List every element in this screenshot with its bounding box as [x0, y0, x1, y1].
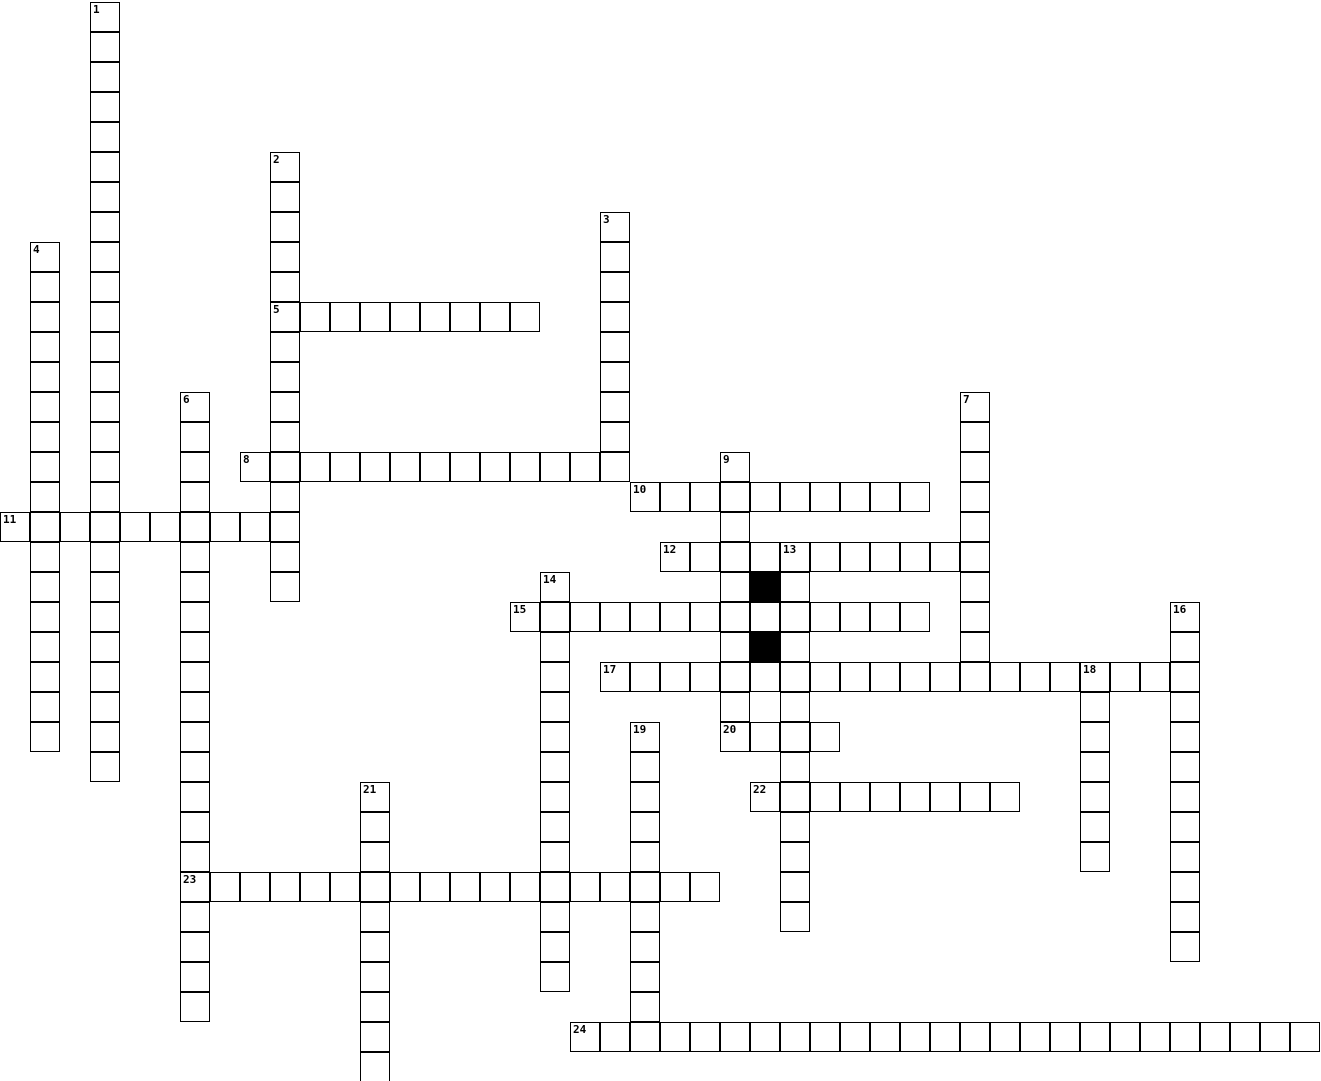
grid-cell[interactable] [870, 482, 900, 512]
grid-cell[interactable] [360, 302, 390, 332]
grid-cell[interactable] [900, 542, 930, 572]
grid-cell[interactable] [780, 752, 810, 782]
grid-cell[interactable] [510, 302, 540, 332]
grid-cell[interactable] [180, 752, 210, 782]
grid-cell[interactable] [360, 1052, 390, 1081]
clue-number: 12 [663, 544, 676, 555]
grid-cell[interactable] [840, 782, 870, 812]
grid-cell[interactable] [990, 1022, 1020, 1052]
grid-cell[interactable] [780, 602, 810, 632]
grid-cell[interactable] [90, 182, 120, 212]
grid-cell[interactable] [600, 392, 630, 422]
grid-cell[interactable] [270, 242, 300, 272]
grid-cell[interactable] [90, 242, 120, 272]
grid-cell[interactable] [180, 452, 210, 482]
grid-cell[interactable] [900, 1022, 930, 1052]
grid-cell[interactable] [720, 662, 750, 692]
grid-cell[interactable] [450, 452, 480, 482]
grid-cell[interactable] [720, 1022, 750, 1052]
grid-cell[interactable] [600, 1022, 630, 1052]
grid-cell[interactable] [750, 542, 780, 572]
grid-cell[interactable] [1170, 782, 1200, 812]
grid-cell[interactable]: 7 [960, 392, 990, 422]
grid-cell[interactable] [270, 392, 300, 422]
grid-cell[interactable] [180, 662, 210, 692]
grid-cell[interactable] [1170, 632, 1200, 662]
grid-cell[interactable] [660, 1022, 690, 1052]
grid-cell[interactable] [870, 662, 900, 692]
grid-cell[interactable] [90, 542, 120, 572]
grid-cell[interactable] [1050, 662, 1080, 692]
grid-cell[interactable] [360, 842, 390, 872]
grid-cell[interactable] [270, 572, 300, 602]
grid-cell[interactable] [510, 872, 540, 902]
grid-cell[interactable] [1170, 902, 1200, 932]
grid-cell[interactable] [1170, 722, 1200, 752]
grid-cell[interactable] [1170, 752, 1200, 782]
grid-cell[interactable] [870, 782, 900, 812]
grid-cell[interactable] [240, 872, 270, 902]
grid-cell[interactable]: 18 [1080, 662, 1110, 692]
grid-cell[interactable]: 12 [660, 542, 690, 572]
grid-cell[interactable] [180, 422, 210, 452]
grid-cell[interactable] [360, 932, 390, 962]
clue-number: 19 [633, 724, 646, 735]
grid-cell[interactable] [30, 632, 60, 662]
grid-cell[interactable]: 19 [630, 722, 660, 752]
grid-cell[interactable] [30, 722, 60, 752]
grid-cell[interactable] [30, 302, 60, 332]
grid-cell[interactable] [540, 602, 570, 632]
grid-cell[interactable] [480, 452, 510, 482]
grid-cell[interactable]: 23 [180, 872, 210, 902]
grid-cell[interactable] [270, 542, 300, 572]
grid-cell[interactable] [1260, 1022, 1290, 1052]
grid-cell[interactable] [420, 452, 450, 482]
grid-cell[interactable] [810, 722, 840, 752]
grid-cell[interactable] [30, 572, 60, 602]
grid-cell[interactable] [90, 302, 120, 332]
grid-cell[interactable] [1020, 662, 1050, 692]
grid-cell[interactable] [390, 452, 420, 482]
grid-cell[interactable] [90, 632, 120, 662]
grid-cell[interactable] [780, 1022, 810, 1052]
grid-cell[interactable] [540, 662, 570, 692]
grid-cell[interactable] [30, 452, 60, 482]
grid-cell[interactable] [90, 332, 120, 362]
grid-cell[interactable] [840, 1022, 870, 1052]
grid-cell[interactable] [720, 692, 750, 722]
grid-cell[interactable] [750, 602, 780, 632]
grid-cell[interactable] [600, 362, 630, 392]
grid-cell[interactable] [780, 872, 810, 902]
grid-cell[interactable] [360, 1022, 390, 1052]
grid-cell[interactable] [840, 662, 870, 692]
grid-cell[interactable] [630, 872, 660, 902]
grid-cell[interactable] [750, 722, 780, 752]
block-cell [750, 572, 780, 602]
grid-cell[interactable] [930, 662, 960, 692]
grid-cell[interactable] [630, 782, 660, 812]
grid-cell[interactable] [1110, 662, 1140, 692]
grid-cell[interactable] [300, 302, 330, 332]
grid-cell[interactable] [960, 542, 990, 572]
grid-cell[interactable] [540, 962, 570, 992]
grid-cell[interactable] [90, 512, 120, 542]
grid-cell[interactable] [540, 842, 570, 872]
grid-cell[interactable] [960, 1022, 990, 1052]
grid-cell[interactable] [360, 812, 390, 842]
grid-cell[interactable] [570, 872, 600, 902]
grid-cell[interactable]: 15 [510, 602, 540, 632]
grid-cell[interactable]: 20 [720, 722, 750, 752]
grid-cell[interactable] [1080, 812, 1110, 842]
grid-cell[interactable] [690, 872, 720, 902]
grid-cell[interactable] [1020, 1022, 1050, 1052]
grid-cell[interactable] [960, 422, 990, 452]
grid-cell[interactable] [540, 902, 570, 932]
grid-cell[interactable] [540, 632, 570, 662]
grid-cell[interactable] [180, 602, 210, 632]
grid-cell[interactable]: 16 [1170, 602, 1200, 632]
grid-cell[interactable] [150, 512, 180, 542]
grid-cell[interactable] [780, 842, 810, 872]
grid-cell[interactable] [90, 92, 120, 122]
grid-cell[interactable] [960, 632, 990, 662]
grid-cell[interactable] [690, 602, 720, 632]
grid-cell[interactable] [270, 332, 300, 362]
grid-cell[interactable] [90, 392, 120, 422]
grid-cell[interactable] [540, 692, 570, 722]
grid-cell[interactable] [390, 302, 420, 332]
grid-cell[interactable] [270, 272, 300, 302]
grid-cell[interactable] [90, 572, 120, 602]
grid-cell[interactable] [600, 272, 630, 302]
grid-cell[interactable] [270, 482, 300, 512]
grid-cell[interactable] [780, 812, 810, 842]
grid-cell[interactable] [30, 602, 60, 632]
grid-cell[interactable] [1170, 692, 1200, 722]
grid-cell[interactable] [630, 992, 660, 1022]
grid-cell[interactable] [600, 452, 630, 482]
grid-cell[interactable] [1080, 722, 1110, 752]
grid-cell[interactable] [180, 962, 210, 992]
grid-cell[interactable] [720, 572, 750, 602]
grid-cell[interactable] [960, 482, 990, 512]
clue-number: 16 [1173, 604, 1186, 615]
grid-cell[interactable]: 9 [720, 452, 750, 482]
grid-cell[interactable] [180, 512, 210, 542]
grid-cell[interactable] [660, 482, 690, 512]
clue-number: 13 [783, 544, 796, 555]
grid-cell[interactable]: 8 [240, 452, 270, 482]
grid-cell[interactable] [180, 842, 210, 872]
grid-cell[interactable] [990, 782, 1020, 812]
grid-cell[interactable] [90, 662, 120, 692]
grid-cell[interactable] [300, 872, 330, 902]
grid-cell[interactable] [630, 842, 660, 872]
grid-cell[interactable] [270, 872, 300, 902]
grid-cell[interactable] [750, 1022, 780, 1052]
grid-cell[interactable] [360, 962, 390, 992]
grid-cell[interactable] [630, 812, 660, 842]
grid-cell[interactable] [1080, 842, 1110, 872]
grid-cell[interactable] [810, 542, 840, 572]
grid-cell[interactable] [90, 122, 120, 152]
grid-cell[interactable] [540, 752, 570, 782]
grid-cell[interactable] [570, 452, 600, 482]
grid-cell[interactable] [960, 512, 990, 542]
grid-cell[interactable] [600, 872, 630, 902]
grid-cell[interactable] [810, 482, 840, 512]
grid-cell[interactable] [270, 422, 300, 452]
grid-cell[interactable] [90, 722, 120, 752]
grid-cell[interactable] [180, 902, 210, 932]
grid-cell[interactable] [180, 692, 210, 722]
block-cell [750, 632, 780, 662]
grid-cell[interactable] [690, 482, 720, 512]
grid-cell[interactable]: 4 [30, 242, 60, 272]
grid-cell[interactable] [180, 632, 210, 662]
grid-cell[interactable] [780, 692, 810, 722]
grid-cell[interactable] [270, 362, 300, 392]
grid-cell[interactable] [1140, 662, 1170, 692]
grid-cell[interactable] [180, 572, 210, 602]
grid-cell[interactable] [720, 512, 750, 542]
grid-cell[interactable] [510, 452, 540, 482]
grid-cell[interactable] [810, 782, 840, 812]
grid-cell[interactable] [630, 1022, 660, 1052]
grid-cell[interactable] [90, 602, 120, 632]
grid-cell[interactable] [930, 782, 960, 812]
grid-cell[interactable] [600, 602, 630, 632]
grid-cell[interactable] [750, 482, 780, 512]
grid-cell[interactable] [960, 572, 990, 602]
grid-cell[interactable] [30, 362, 60, 392]
grid-cell[interactable] [690, 1022, 720, 1052]
grid-cell[interactable] [360, 452, 390, 482]
grid-cell[interactable] [540, 812, 570, 842]
grid-cell[interactable] [90, 32, 120, 62]
grid-cell[interactable] [1230, 1022, 1260, 1052]
grid-cell[interactable] [270, 512, 300, 542]
grid-cell[interactable] [960, 662, 990, 692]
grid-cell[interactable] [930, 1022, 960, 1052]
grid-cell[interactable] [630, 752, 660, 782]
grid-cell[interactable] [30, 542, 60, 572]
grid-cell[interactable] [450, 872, 480, 902]
grid-cell[interactable]: 1 [90, 2, 120, 32]
grid-cell[interactable] [210, 512, 240, 542]
grid-cell[interactable] [780, 662, 810, 692]
grid-cell[interactable] [30, 422, 60, 452]
grid-cell[interactable] [30, 272, 60, 302]
grid-cell[interactable] [180, 992, 210, 1022]
grid-cell[interactable] [60, 512, 90, 542]
grid-cell[interactable] [1080, 752, 1110, 782]
grid-cell[interactable] [180, 722, 210, 752]
grid-cell[interactable] [600, 332, 630, 362]
grid-cell[interactable]: 10 [630, 482, 660, 512]
grid-cell[interactable] [870, 542, 900, 572]
grid-cell[interactable] [600, 422, 630, 452]
grid-cell[interactable] [870, 1022, 900, 1052]
grid-cell[interactable] [630, 602, 660, 632]
grid-cell[interactable] [840, 602, 870, 632]
grid-cell[interactable] [180, 482, 210, 512]
grid-cell[interactable] [90, 272, 120, 302]
grid-cell[interactable] [180, 932, 210, 962]
grid-cell[interactable] [780, 902, 810, 932]
grid-cell[interactable]: 22 [750, 782, 780, 812]
grid-cell[interactable] [750, 662, 780, 692]
grid-cell[interactable] [780, 482, 810, 512]
grid-cell[interactable] [720, 542, 750, 572]
grid-cell[interactable] [900, 782, 930, 812]
grid-cell[interactable] [240, 512, 270, 542]
grid-cell[interactable]: 11 [0, 512, 30, 542]
grid-cell[interactable] [840, 482, 870, 512]
grid-cell[interactable] [960, 782, 990, 812]
grid-cell[interactable] [960, 602, 990, 632]
grid-cell[interactable] [30, 392, 60, 422]
grid-cell[interactable] [990, 662, 1020, 692]
grid-cell[interactable] [900, 602, 930, 632]
grid-cell[interactable] [690, 662, 720, 692]
grid-cell[interactable] [810, 602, 840, 632]
grid-cell[interactable] [90, 362, 120, 392]
grid-cell[interactable] [960, 452, 990, 482]
grid-cell[interactable] [1170, 872, 1200, 902]
grid-cell[interactable] [630, 932, 660, 962]
grid-cell[interactable] [1170, 662, 1200, 692]
grid-cell[interactable] [120, 512, 150, 542]
grid-cell[interactable] [690, 542, 720, 572]
grid-cell[interactable] [90, 152, 120, 182]
grid-cell[interactable] [900, 482, 930, 512]
grid-cell[interactable] [360, 902, 390, 932]
grid-cell[interactable]: 14 [540, 572, 570, 602]
grid-cell[interactable] [90, 752, 120, 782]
grid-cell[interactable] [780, 632, 810, 662]
grid-cell[interactable] [660, 872, 690, 902]
grid-cell[interactable] [210, 872, 240, 902]
grid-cell[interactable] [360, 992, 390, 1022]
grid-cell[interactable] [1170, 812, 1200, 842]
grid-cell[interactable] [1080, 1022, 1110, 1052]
clue-number: 21 [363, 784, 376, 795]
grid-cell[interactable]: 5 [270, 302, 300, 332]
grid-cell[interactable] [330, 872, 360, 902]
grid-cell[interactable] [930, 542, 960, 572]
grid-cell[interactable] [1170, 932, 1200, 962]
grid-cell[interactable] [330, 452, 360, 482]
grid-cell[interactable]: 21 [360, 782, 390, 812]
grid-cell[interactable] [1140, 1022, 1170, 1052]
grid-cell[interactable] [570, 602, 600, 632]
grid-cell[interactable] [1170, 842, 1200, 872]
grid-cell[interactable] [270, 212, 300, 242]
grid-cell[interactable] [540, 452, 570, 482]
clue-number: 9 [723, 454, 730, 465]
grid-cell[interactable] [300, 452, 330, 482]
grid-cell[interactable] [270, 182, 300, 212]
grid-cell[interactable]: 13 [780, 542, 810, 572]
grid-cell[interactable] [90, 692, 120, 722]
grid-cell[interactable] [1050, 1022, 1080, 1052]
grid-cell[interactable] [540, 782, 570, 812]
grid-cell[interactable] [330, 302, 360, 332]
grid-cell[interactable] [90, 212, 120, 242]
grid-cell[interactable] [90, 452, 120, 482]
grid-cell[interactable] [480, 302, 510, 332]
grid-cell[interactable] [30, 662, 60, 692]
grid-cell[interactable] [600, 242, 630, 272]
grid-cell[interactable] [30, 512, 60, 542]
grid-cell[interactable] [660, 662, 690, 692]
grid-cell[interactable] [1170, 1022, 1200, 1052]
grid-cell[interactable]: 2 [270, 152, 300, 182]
grid-cell[interactable] [180, 782, 210, 812]
grid-cell[interactable] [780, 782, 810, 812]
grid-cell[interactable] [480, 872, 510, 902]
grid-cell[interactable]: 6 [180, 392, 210, 422]
grid-cell[interactable] [180, 812, 210, 842]
grid-cell[interactable] [630, 662, 660, 692]
grid-cell[interactable] [810, 662, 840, 692]
grid-cell[interactable] [360, 872, 390, 902]
grid-cell[interactable]: 24 [570, 1022, 600, 1052]
clue-number: 4 [33, 244, 40, 255]
grid-cell[interactable] [810, 1022, 840, 1052]
grid-cell[interactable] [720, 482, 750, 512]
grid-cell[interactable] [540, 872, 570, 902]
grid-cell[interactable] [390, 872, 420, 902]
grid-cell[interactable] [600, 302, 630, 332]
grid-cell[interactable] [540, 932, 570, 962]
grid-cell[interactable] [30, 482, 60, 512]
grid-cell[interactable]: 3 [600, 212, 630, 242]
grid-cell[interactable] [720, 632, 750, 662]
grid-cell[interactable] [780, 722, 810, 752]
grid-cell[interactable] [1290, 1022, 1320, 1052]
grid-cell[interactable] [630, 902, 660, 932]
grid-cell[interactable] [540, 722, 570, 752]
grid-cell[interactable] [840, 542, 870, 572]
grid-cell[interactable] [30, 692, 60, 722]
grid-cell[interactable] [720, 602, 750, 632]
grid-cell[interactable] [1200, 1022, 1230, 1052]
grid-cell[interactable] [1080, 782, 1110, 812]
grid-cell[interactable] [900, 662, 930, 692]
grid-cell[interactable] [420, 302, 450, 332]
grid-cell[interactable] [90, 482, 120, 512]
grid-cell[interactable] [90, 422, 120, 452]
grid-cell[interactable] [90, 62, 120, 92]
grid-cell[interactable] [630, 962, 660, 992]
grid-cell[interactable] [180, 542, 210, 572]
grid-cell[interactable] [270, 452, 300, 482]
grid-cell[interactable] [870, 602, 900, 632]
grid-cell[interactable]: 17 [600, 662, 630, 692]
grid-cell[interactable] [780, 572, 810, 602]
grid-cell[interactable] [660, 602, 690, 632]
grid-cell[interactable] [1080, 692, 1110, 722]
grid-cell[interactable] [450, 302, 480, 332]
grid-cell[interactable] [1110, 1022, 1140, 1052]
grid-cell[interactable] [30, 332, 60, 362]
grid-cell[interactable] [420, 872, 450, 902]
